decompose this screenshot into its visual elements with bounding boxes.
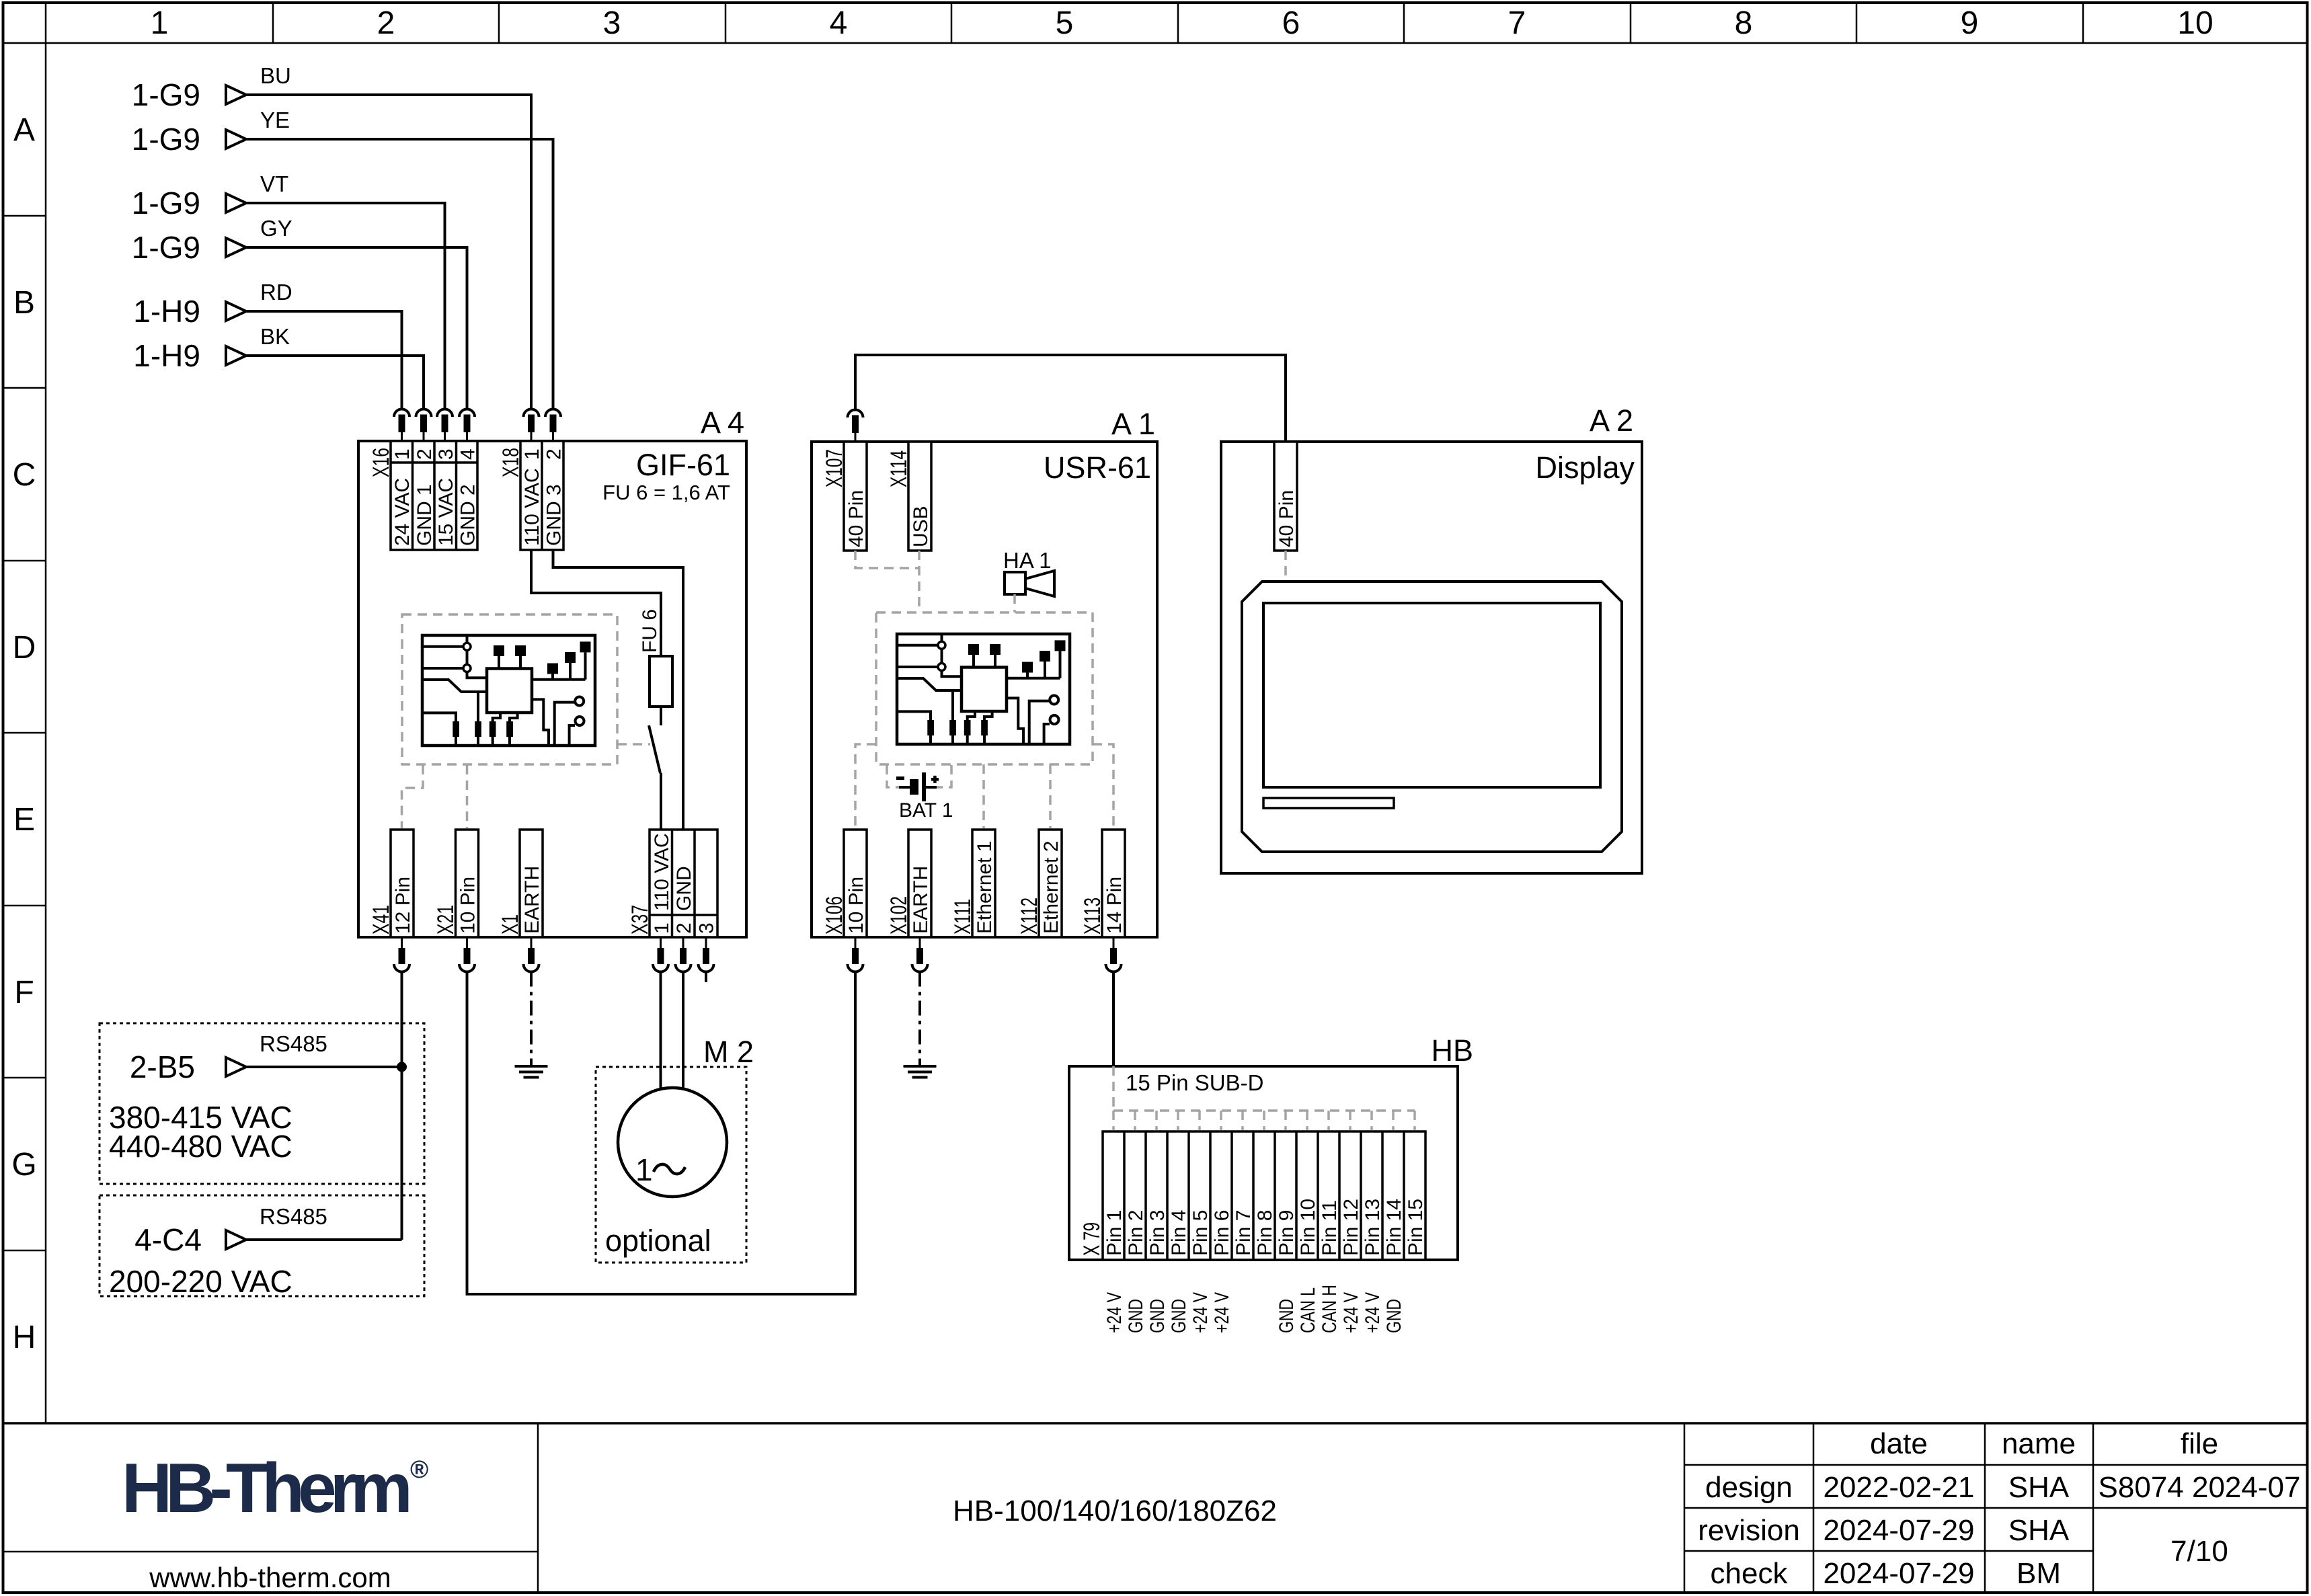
svg-text:USR-61: USR-61 (1044, 450, 1151, 485)
svg-text:GND: GND (1168, 1299, 1190, 1333)
svg-text:Pin 12: Pin 12 (1340, 1199, 1362, 1256)
svg-text:GIF-61: GIF-61 (636, 448, 730, 482)
svg-text:Pin 6: Pin 6 (1211, 1210, 1233, 1256)
svg-text:2: 2 (414, 448, 436, 460)
svg-text:A 2: A 2 (1590, 403, 1633, 438)
svg-text:Pin 2: Pin 2 (1125, 1210, 1147, 1256)
svg-text:HB: HB (1431, 1033, 1473, 1068)
svg-text:5: 5 (1056, 5, 1074, 41)
svg-text:+24 V: +24 V (1340, 1292, 1362, 1333)
svg-text:1: 1 (651, 922, 673, 934)
svg-text:VT: VT (260, 171, 288, 196)
svg-text:12 Pin: 12 Pin (392, 877, 414, 934)
svg-text:2022-02-21: 2022-02-21 (1823, 1471, 1974, 1504)
svg-text:10 Pin: 10 Pin (845, 877, 867, 934)
svg-text:1: 1 (151, 5, 169, 41)
svg-text:GND 2: GND 2 (457, 484, 479, 546)
svg-text:15 VAC: 15 VAC (435, 478, 457, 546)
svg-text:Ethernet 2: Ethernet 2 (1040, 841, 1062, 934)
svg-text:GND 3: GND 3 (543, 484, 565, 546)
svg-text:X1: X1 (498, 914, 523, 934)
svg-text:Pin 15: Pin 15 (1405, 1199, 1427, 1256)
svg-text:Pin 4: Pin 4 (1168, 1210, 1190, 1256)
svg-text:check: check (1711, 1557, 1789, 1590)
svg-text:2024-07-29: 2024-07-29 (1823, 1557, 1974, 1590)
svg-text:X111: X111 (950, 899, 976, 934)
svg-text:revision: revision (1698, 1514, 1800, 1547)
svg-text:Pin 5: Pin 5 (1189, 1210, 1212, 1256)
svg-text:M 2: M 2 (703, 1035, 754, 1069)
svg-text:BAT 1: BAT 1 (899, 799, 953, 822)
svg-text:YE: YE (260, 108, 290, 132)
svg-text:Pin 13: Pin 13 (1362, 1199, 1384, 1256)
svg-text:GND: GND (1383, 1299, 1405, 1333)
svg-text:HB-100/140/160/180Z62: HB-100/140/160/180Z62 (953, 1494, 1277, 1527)
svg-text:1: 1 (635, 1152, 653, 1187)
svg-text:A: A (13, 112, 35, 148)
svg-text:4: 4 (457, 448, 479, 460)
svg-text:E: E (13, 802, 35, 838)
svg-text:40 Pin: 40 Pin (845, 490, 867, 547)
svg-text:X114: X114 (886, 450, 912, 487)
svg-text:H: H (13, 1320, 36, 1355)
svg-text:1-G9: 1-G9 (132, 77, 200, 112)
svg-text:CAN L: CAN L (1297, 1287, 1319, 1333)
svg-text:X21: X21 (433, 905, 459, 934)
svg-text:440-480 VAC: 440-480 VAC (109, 1129, 292, 1164)
svg-text:BU: BU (260, 63, 291, 88)
svg-text:HB-Therm: HB-Therm (122, 1449, 409, 1527)
svg-text:EARTH: EARTH (910, 866, 932, 934)
svg-text:C: C (13, 457, 36, 493)
svg-text:SHA: SHA (2008, 1471, 2070, 1504)
svg-text:RS485: RS485 (260, 1031, 327, 1056)
svg-text:GND: GND (673, 866, 695, 911)
svg-text:X107: X107 (822, 449, 847, 487)
svg-text:24 VAC: 24 VAC (391, 478, 414, 546)
svg-text:Display: Display (1535, 450, 1635, 485)
svg-text:X16: X16 (368, 448, 394, 477)
svg-text:110 VAC: 110 VAC (651, 833, 673, 911)
svg-text:A 1: A 1 (1111, 407, 1155, 441)
svg-text:A 4: A 4 (701, 405, 744, 440)
svg-text:200-220 VAC: 200-220 VAC (109, 1264, 292, 1299)
svg-text:X113: X113 (1080, 897, 1105, 934)
svg-text:D: D (13, 630, 36, 666)
svg-text:BK: BK (260, 324, 290, 349)
svg-text:1: 1 (391, 448, 414, 460)
svg-text:Pin 14: Pin 14 (1383, 1199, 1405, 1256)
svg-text:Pin 10: Pin 10 (1297, 1199, 1319, 1256)
svg-text:SHA: SHA (2008, 1514, 2070, 1547)
svg-text:2024-07-29: 2024-07-29 (1823, 1514, 1974, 1547)
svg-text:BM: BM (2016, 1557, 2061, 1590)
svg-text:2: 2 (543, 448, 565, 460)
svg-text:+24 V: +24 V (1103, 1292, 1126, 1333)
svg-text:design: design (1705, 1471, 1793, 1504)
svg-text:1-G9: 1-G9 (132, 186, 200, 221)
svg-text:FU 6: FU 6 (639, 609, 661, 653)
svg-text:GND: GND (1276, 1299, 1298, 1333)
svg-text:4: 4 (830, 5, 848, 41)
svg-text:USB: USB (910, 506, 932, 547)
svg-text:RS485: RS485 (260, 1204, 327, 1229)
svg-text:Pin 11: Pin 11 (1319, 1200, 1341, 1256)
svg-text:file: file (2181, 1427, 2218, 1460)
svg-text:X102: X102 (886, 896, 912, 934)
svg-text:7: 7 (1508, 5, 1526, 41)
svg-text:Pin 1: Pin 1 (1103, 1210, 1126, 1256)
svg-text:X41: X41 (368, 905, 394, 934)
svg-text:+24 V: +24 V (1362, 1292, 1384, 1333)
svg-text:14 Pin: 14 Pin (1103, 877, 1126, 934)
svg-text:S8074 2024-07: S8074 2024-07 (2099, 1471, 2301, 1504)
svg-text:GND 1: GND 1 (414, 484, 436, 546)
svg-text:G: G (11, 1147, 36, 1183)
svg-text:10 Pin: 10 Pin (457, 877, 479, 934)
svg-text:HA 1: HA 1 (1003, 548, 1052, 573)
svg-text:FU 6 = 1,6 AT: FU 6 = 1,6 AT (602, 481, 730, 504)
svg-text:15 Pin SUB-D: 15 Pin SUB-D (1126, 1070, 1263, 1095)
svg-text:Pin 3: Pin 3 (1146, 1210, 1169, 1256)
svg-text:1-H9: 1-H9 (133, 294, 200, 329)
svg-text:2-B5: 2-B5 (130, 1049, 195, 1084)
svg-text:B: B (13, 285, 35, 321)
svg-text:3: 3 (603, 5, 621, 41)
svg-text:Pin 8: Pin 8 (1254, 1210, 1276, 1256)
svg-text:www.hb-therm.com: www.hb-therm.com (149, 1562, 391, 1593)
svg-text:+24 V: +24 V (1189, 1292, 1212, 1333)
svg-text:RD: RD (260, 280, 292, 305)
svg-text:F: F (14, 975, 34, 1010)
svg-text:2: 2 (673, 922, 695, 934)
svg-text:GND: GND (1125, 1299, 1147, 1333)
svg-text:40 Pin: 40 Pin (1276, 490, 1298, 547)
svg-text:Pin 9: Pin 9 (1276, 1210, 1298, 1256)
svg-text:3: 3 (696, 922, 718, 934)
svg-text:4-C4: 4-C4 (134, 1222, 202, 1257)
svg-text:X37: X37 (627, 905, 653, 934)
svg-text:GND: GND (1146, 1299, 1169, 1333)
svg-text:8: 8 (1735, 5, 1753, 41)
svg-text:+24 V: +24 V (1211, 1292, 1233, 1333)
svg-text:date: date (1870, 1427, 1928, 1460)
svg-text:10: 10 (2177, 5, 2213, 41)
svg-text:Ethernet 1: Ethernet 1 (974, 841, 996, 934)
svg-text:X106: X106 (822, 896, 847, 934)
svg-text:1: 1 (521, 448, 543, 460)
svg-text:®: ® (410, 1455, 428, 1483)
svg-text:X112: X112 (1017, 897, 1042, 934)
svg-text:6: 6 (1282, 5, 1300, 41)
svg-text:X18: X18 (498, 448, 524, 477)
svg-text:7/10: 7/10 (2170, 1535, 2228, 1568)
svg-text:1-G9: 1-G9 (132, 230, 200, 265)
svg-text:CAN H: CAN H (1319, 1285, 1341, 1333)
svg-text:GY: GY (260, 216, 292, 241)
svg-text:2: 2 (377, 5, 395, 41)
svg-text:optional: optional (605, 1224, 711, 1258)
svg-text:name: name (2002, 1427, 2076, 1460)
svg-text:EARTH: EARTH (521, 866, 543, 934)
svg-text:3: 3 (435, 448, 457, 460)
svg-text:110 VAC: 110 VAC (521, 468, 543, 546)
svg-text:Pin 7: Pin 7 (1232, 1210, 1255, 1256)
svg-text:1-G9: 1-G9 (132, 122, 200, 157)
svg-text:9: 9 (1961, 5, 1979, 41)
svg-text:X 79: X 79 (1079, 1222, 1105, 1256)
svg-text:1-H9: 1-H9 (133, 338, 200, 373)
